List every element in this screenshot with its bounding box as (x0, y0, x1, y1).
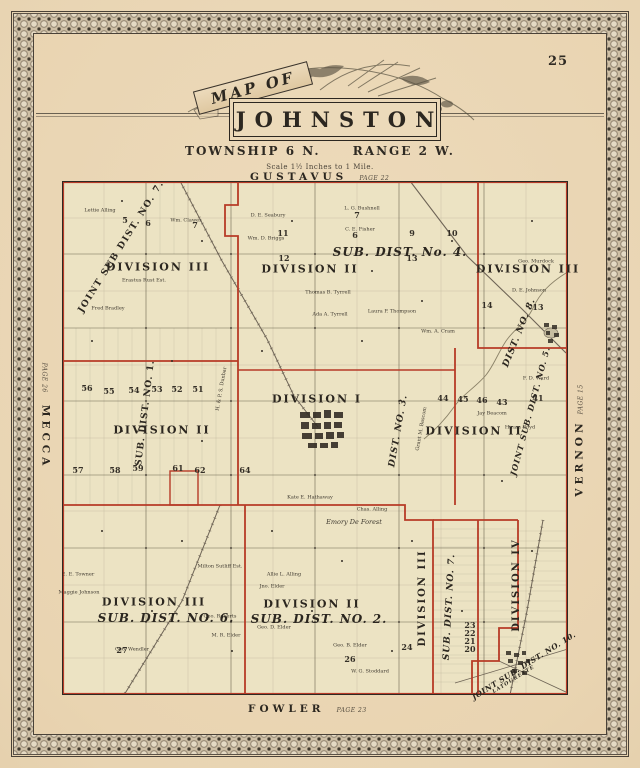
east-township-name: VERNON (574, 419, 586, 496)
page-number: 25 (548, 54, 568, 69)
township-range-line: TOWNSHIP 6 N. RANGE 2 W. (0, 144, 640, 158)
edge-label-south: FOWLER PAGE 23 (248, 697, 367, 716)
atlas-page: 25 MAP OF JOHNSTON TOWNSHIP 6 N. RANGE 2… (0, 0, 640, 768)
west-page-ref: PAGE 26 (41, 363, 48, 393)
east-page-ref: PAGE 15 (578, 384, 585, 414)
plat-linework (62, 181, 568, 695)
edge-label-west: PAGE 26 MECCA (39, 363, 58, 470)
range-label: RANGE 2 W. (353, 144, 455, 158)
west-township-name: MECCA (40, 405, 52, 470)
south-township-name: FOWLER (248, 703, 325, 715)
south-page-ref: PAGE 23 (337, 707, 367, 714)
township-title: JOHNSTON (227, 107, 444, 132)
edge-label-east: VERNON PAGE 15 (568, 377, 587, 496)
township-title-box: JOHNSTON (233, 102, 437, 137)
township-map: JOINT SUB DIST. NO. 7.DIVISION IIIDIVISI… (62, 181, 568, 695)
township-label: TOWNSHIP 6 N. (185, 144, 321, 158)
